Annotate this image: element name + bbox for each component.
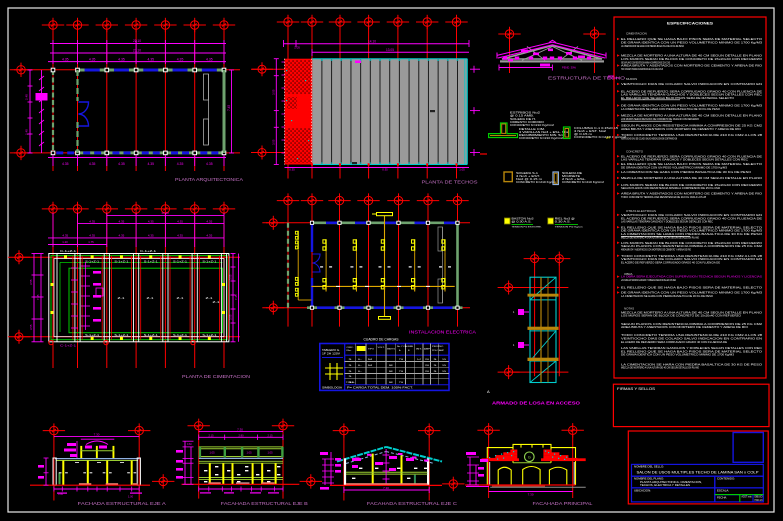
svg-text:13.05: 13.05 [386, 48, 394, 52]
svg-text:3.55: 3.55 [272, 89, 276, 95]
svg-text:INT.: INT. [416, 349, 423, 351]
svg-text:INSTALACION ELECTRICA: INSTALACION ELECTRICA [409, 330, 476, 335]
svg-text:2.40: 2.40 [25, 129, 29, 135]
svg-text:EL ACERO DE REFUERZO SERA CORR: EL ACERO DE REFUERZO SERA CORRUGADO GRAD… [621, 340, 727, 344]
svg-text:1.20: 1.20 [62, 240, 68, 244]
svg-text:3.55: 3.55 [272, 139, 276, 145]
svg-text:S-1+Z-1: S-1+Z-1 [114, 334, 129, 337]
svg-text:MEZCLA DE MORTERO A UNA ALTURA: MEZCLA DE MORTERO A UNA ALTURA DE 40 CM … [621, 366, 700, 370]
svg-text:4.35: 4.35 [177, 162, 184, 166]
svg-text:CIMENTACION: CIMENTACION [626, 32, 647, 36]
svg-text:TW: TW [399, 371, 403, 373]
svg-text:1.75: 1.75 [88, 240, 94, 244]
svg-text:TIPO: TIPO [368, 349, 374, 351]
svg-text:4.35: 4.35 [119, 219, 125, 223]
svg-text:S-1+Z-1: S-1+Z-1 [114, 260, 129, 263]
svg-text:MUROS: MUROS [608, 76, 619, 80]
svg-text:SALON DE USOS MULTIPLES TECHO: SALON DE USOS MULTIPLES TECHO DE LAMINA … [637, 471, 760, 475]
svg-text:1.00: 1.00 [128, 495, 134, 499]
svg-text:LA CIMENTACION SE HARA CON PIE: LA CIMENTACION SE HARA CON PIEDRA BASALT… [621, 107, 721, 111]
svg-text:2.15: 2.15 [267, 433, 273, 437]
svg-text:S-1+Z-1: S-1+Z-1 [144, 260, 159, 263]
svg-text:4.35: 4.35 [62, 57, 69, 61]
svg-text:0.30 A.S.: 0.30 A.S. [555, 220, 572, 223]
svg-text:VEINTIOCHO DIAS DE COLADO SALV: VEINTIOCHO DIAS DE COLADO SALVO INDICACI… [621, 136, 677, 140]
svg-text:4.35: 4.35 [206, 57, 213, 61]
svg-text:TENSION P/2 EN EXTRE.: TENSION P/2 EN EXTRE. [512, 226, 542, 228]
svg-text:P= CARGA TOTAL DEM. 100% FAC: P= CARGA TOTAL DEM. 100% FACT. [347, 387, 414, 390]
svg-text:CUADRO DE CARGAS: CUADRO DE CARGAS [364, 338, 400, 342]
svg-text:22.10: 22.10 [133, 39, 141, 43]
svg-text:TOTAL: TOTAL [346, 381, 356, 384]
svg-text:DE GRAVA IDENTICA CON UN PESO: DE GRAVA IDENTICA CON UN PESO VOLUMETRIC… [621, 353, 734, 357]
svg-text:0.35: 0.35 [382, 168, 388, 172]
svg-text:1.05: 1.05 [209, 451, 215, 455]
svg-text:CONCRETO fc=210 Kg/cm2: CONCRETO fc=210 Kg/cm2 [562, 181, 605, 184]
svg-text:S-1+Z-1: S-1+Z-1 [85, 260, 100, 263]
svg-text:4.35: 4.35 [147, 57, 154, 61]
svg-text:C-1+Z-1: C-1+Z-1 [140, 250, 157, 253]
svg-text:4.35: 4.35 [206, 162, 213, 166]
svg-text:4.35: 4.35 [177, 219, 183, 223]
svg-text:S-1+Z-1: S-1+Z-1 [85, 334, 100, 337]
svg-text:BASTON No3: BASTON No3 [512, 218, 535, 221]
svg-text:NOMBRE DEL SELLO:: NOMBRE DEL SELLO: [634, 466, 664, 469]
svg-text:DIBUJO: DIBUJO [755, 497, 763, 499]
svg-text:PROTEC.: PROTEC. [432, 346, 444, 348]
svg-text:TW: TW [399, 382, 403, 384]
svg-text:4.35: 4.35 [206, 219, 212, 223]
svg-text:CONTENIDO:: CONTENIDO: [717, 478, 735, 481]
svg-text:4.35: 4.35 [89, 234, 95, 238]
svg-text:TODO CONCRETO TENDRA UNA RESIS: TODO CONCRETO TENDRA UNA RESISTENCIA DE … [621, 67, 663, 71]
svg-text:M: M [368, 359, 373, 361]
svg-text:g/N: g/N [606, 135, 610, 139]
svg-text:FACAHADA PRINCIPAL: FACAHADA PRINCIPAL [533, 501, 594, 506]
svg-text:PLANTA DE TECHOS: PLANTA DE TECHOS [422, 179, 478, 184]
svg-text:G: G [528, 455, 531, 460]
svg-text:S-1+Z-1: S-1+Z-1 [144, 334, 159, 337]
svg-text:LA CIMENTACION SE HARA CON PIE: LA CIMENTACION SE HARA CON PIEDRA BASALT… [621, 170, 752, 174]
svg-text:21.10: 21.10 [133, 49, 141, 53]
svg-text:LAS VARILLAS TENDRAN GANCHOS Y: LAS VARILLAS TENDRAN GANCHOS Y DOBLECES … [621, 278, 676, 282]
svg-text:CONCRETO fc=210 Kg/cm: CONCRETO fc=210 Kg/cm [516, 181, 556, 184]
svg-text:MUROS: MUROS [626, 77, 637, 81]
svg-text:1.05: 1.05 [459, 168, 465, 172]
svg-text:LAS VARILLAS TENDRAN GANCHOS Y: LAS VARILLAS TENDRAN GANCHOS Y DOBLECES … [621, 158, 748, 162]
svg-text:VOLT.: VOLT. [378, 347, 385, 349]
svg-text:AMP: AMP [424, 348, 431, 351]
svg-text:VEINTIOCHO DIAS DE COLADO SALV: VEINTIOCHO DIAS DE COLADO SALVO INDICACI… [621, 82, 762, 86]
svg-text:TENSION P/2 Kg/cm: TENSION P/2 Kg/cm [555, 226, 583, 228]
svg-text:4.35: 4.35 [89, 219, 95, 223]
svg-text:FACAHADA ESTRUCTURAL EJE B: FACAHADA ESTRUCTURAL EJE B [221, 501, 308, 506]
svg-text:UBICACION:: UBICACION: [634, 489, 651, 492]
svg-text:TW: TW [399, 359, 403, 361]
svg-text:CIRC.: CIRC. [347, 347, 354, 349]
svg-text:4.35: 4.35 [118, 162, 125, 166]
svg-text:0.60: 0.60 [187, 443, 192, 446]
svg-text:7.30: 7.30 [237, 428, 243, 432]
svg-text:3.55: 3.55 [29, 324, 33, 330]
svg-text:C-1+Z-1: C-1+Z-1 [60, 250, 77, 253]
svg-text:EL ACERO DE REFUERZO SERA CORR: EL ACERO DE REFUERZO SERA CORRUGADO GRAD… [621, 261, 720, 265]
svg-text:ESCALA:: ESCALA: [717, 489, 729, 492]
svg-text:CONCRETO fc=210 Kg/cm2: CONCRETO fc=210 Kg/cm2 [574, 136, 627, 139]
svg-text:2.80: 2.80 [238, 433, 244, 437]
svg-text:RIEL No3 @: RIEL No3 @ [555, 219, 576, 221]
svg-text:PLANTA ARQUITECTONICA: PLANTA ARQUITECTONICA [175, 177, 244, 182]
svg-text:MEZCLA DE MORTERO A UNA ALTURA: MEZCLA DE MORTERO A UNA ALTURA DE 40 CM … [621, 176, 763, 180]
svg-text:4.35: 4.35 [89, 162, 96, 166]
svg-text:ACOT: mts: ACOT: mts [742, 496, 753, 499]
svg-text:1F 2H 120V: 1F 2H 120V [322, 354, 341, 356]
svg-text:FIRMAS Y SELLOS: FIRMAS Y SELLOS [617, 387, 656, 391]
svg-text:AREA BRUTA Y ASENTADOS CON MOR: AREA BRUTA Y ASENTADOS CON MORTERO DE CE… [621, 127, 742, 131]
svg-text:0.35: 0.35 [289, 168, 295, 172]
svg-text:S-1+Z-1: S-1+Z-1 [202, 334, 217, 337]
svg-text:POLO AMP: POLO AMP [432, 349, 445, 352]
svg-text:TODO CONCRETO TENDRA UNA RESIS: TODO CONCRETO TENDRA UNA RESISTENCIA DE … [621, 195, 706, 199]
svg-text:M: M [368, 365, 373, 367]
svg-text:4.35: 4.35 [147, 162, 154, 166]
svg-text:2.15: 2.15 [208, 433, 214, 437]
svg-text:17.40: 17.40 [161, 211, 169, 215]
svg-text:@ 0.30 A.S.: @ 0.30 A.S. [512, 220, 533, 223]
svg-text:3.55: 3.55 [229, 274, 233, 280]
svg-text:CONCRETO: CONCRETO [626, 150, 644, 154]
svg-text:EL RELLENO QUE SE HAGA BAJO PI: EL RELLENO QUE SE HAGA BAJO PISOS SERA D… [621, 286, 763, 290]
svg-text:CONCRETO fc=210 Kg/cm2: CONCRETO fc=210 Kg/cm2 [519, 137, 564, 140]
svg-text:LOS MUROS SERAN DE BLOCK DE CO: LOS MUROS SERAN DE BLOCK DE CONCRETO DE … [621, 117, 700, 121]
svg-text:1.05: 1.05 [246, 451, 252, 455]
svg-text:LOS MUROS SERAN DE BLOCK DE CO: LOS MUROS SERAN DE BLOCK DE CONCRETO DE … [621, 314, 742, 318]
svg-text:4.35: 4.35 [177, 57, 184, 61]
svg-text:4.35: 4.35 [62, 162, 69, 166]
svg-text:14.10: 14.10 [368, 39, 376, 43]
svg-text:4.35: 4.35 [206, 234, 212, 238]
svg-text:S-1+Z-1: S-1+Z-1 [173, 334, 188, 337]
svg-text:3.55: 3.55 [29, 279, 33, 285]
svg-text:LA CIMENTACION SE HARA CON PIE: LA CIMENTACION SE HARA CON PIEDRA BASALT… [621, 294, 714, 298]
svg-text:7.30: 7.30 [94, 432, 100, 436]
svg-text:WATTS: WATTS [387, 348, 396, 351]
svg-text:AREA BRUTA Y ASENTADOS CON MOR: AREA BRUTA Y ASENTADOS CON MORTERO DE CE… [621, 325, 749, 329]
svg-text:FACHADA ESTRUCTURAL EJE A: FACHADA ESTRUCTURAL EJE A [78, 501, 166, 506]
svg-text:LAS VARILLAS TENDRAN GANCHOS Y: LAS VARILLAS TENDRAN GANCHOS Y DOBLECES … [621, 220, 713, 224]
svg-text:FECHA:: FECHA: [717, 496, 727, 499]
svg-text:S-1+Z-1: S-1+Z-1 [202, 260, 217, 263]
svg-text:SIMBOLOGIA: SIMBOLOGIA [322, 387, 343, 390]
svg-text:4.35: 4.35 [119, 234, 125, 238]
svg-text:HOJA 1/1: HOJA 1/1 [755, 499, 764, 502]
svg-text:7.30: 7.30 [383, 486, 389, 490]
svg-text:7.45: 7.45 [36, 294, 40, 300]
svg-text:DE GRAVA IDENTICA CON UN PESO: DE GRAVA IDENTICA CON UN PESO VOLUMETRIC… [621, 166, 727, 170]
svg-text:TECHOS, ELECTRICA Y DETALLES: TECHOS, ELECTRICA Y DETALLES [640, 483, 690, 487]
svg-text:AREA BRUTA Y ASENTADOS CON MOR: AREA BRUTA Y ASENTADOS CON MORTERO DE CE… [621, 248, 691, 252]
svg-text:FACAHADA ESTRUCTURAL EJE C: FACAHADA ESTRUCTURAL EJE C [367, 501, 457, 506]
svg-text:ESPECIFICACIONES: ESPECIFICACIONES [667, 21, 714, 25]
svg-text:C-1+Z-1: C-1+Z-1 [60, 345, 77, 348]
svg-text:7.45: 7.45 [227, 105, 231, 111]
svg-text:1.05: 1.05 [294, 46, 300, 50]
svg-text:ARMADO DE LOSA EN ACCESO: ARMADO DE LOSA EN ACCESO [492, 400, 581, 405]
svg-text:A: A [487, 389, 490, 394]
svg-text:No. Y CALIBRE: No. Y CALIBRE [397, 345, 414, 348]
svg-text:4.35: 4.35 [118, 57, 125, 61]
svg-text:S-1+Z-1: S-1+Z-1 [173, 260, 188, 263]
svg-text:7.45: 7.45 [234, 294, 238, 300]
svg-text:LA CIMENTACION SE HARA CON PIE: LA CIMENTACION SE HARA CON PIEDRA BASALT… [621, 44, 684, 48]
svg-text:SEGUN PLANOS CON RESISTENCIA M: SEGUN PLANOS CON RESISTENCIA MINIMA A CO… [621, 186, 720, 190]
svg-text:TABLERO G.: TABLERO G. [322, 349, 340, 352]
svg-text:4.35: 4.35 [177, 234, 183, 238]
svg-text:DUC.: DUC. [358, 353, 364, 355]
svg-text:4.35: 4.35 [148, 219, 154, 223]
svg-text:2.40: 2.40 [25, 94, 29, 100]
svg-text:4.35: 4.35 [89, 57, 96, 61]
svg-text:4.35: 4.35 [62, 234, 68, 238]
svg-text:3.55: 3.55 [229, 314, 233, 320]
svg-text:PLANTA DE CIMENTACION: PLANTA DE CIMENTACION [182, 374, 250, 379]
svg-text:7.30: 7.30 [528, 493, 534, 497]
svg-text:No.: No. [347, 350, 353, 352]
svg-text:PEND. 30%: PEND. 30% [562, 66, 577, 70]
svg-text:CONCRETO fc=210 Kg/cm2: CONCRETO fc=210 Kg/cm2 [510, 124, 555, 127]
svg-text:4.35: 4.35 [148, 234, 154, 238]
svg-text:1.05: 1.05 [267, 451, 273, 455]
